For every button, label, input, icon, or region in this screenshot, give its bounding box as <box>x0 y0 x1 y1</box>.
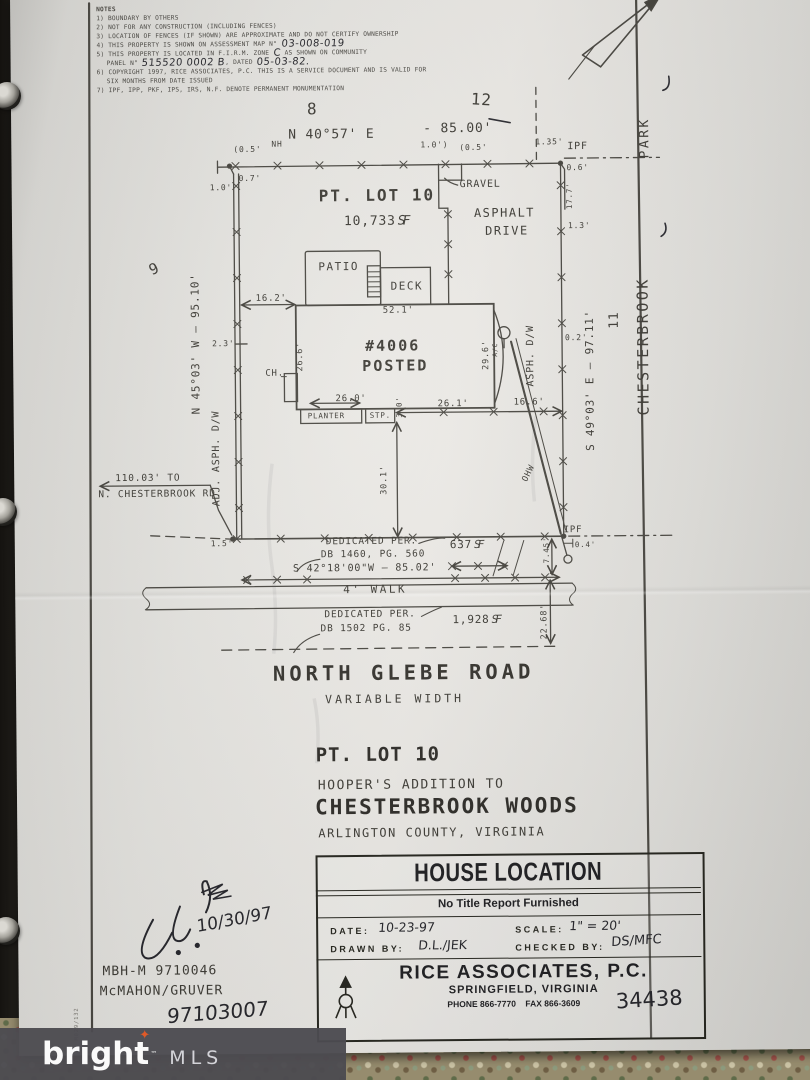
dim: 1.3' <box>568 222 591 230</box>
file-ref-2: McMAHON/GRUVER <box>100 984 224 998</box>
scale-label: SCALE: <box>515 924 564 934</box>
bearing-north: N 40°57' E <box>288 128 374 142</box>
bearing-west: N 45°03' W – 95.10' <box>189 273 201 414</box>
paper-crease <box>15 585 810 601</box>
dedication-2-area: 1,928SF <box>452 614 498 625</box>
dim: 1.35' <box>535 138 563 146</box>
dedication-1-area: 637SF <box>450 539 482 550</box>
subdivision-addition: HOOPER'S ADDITION TO <box>318 778 505 793</box>
adjacent-lot-9: 9 <box>147 260 162 278</box>
brand-name: bright✦ <box>42 1036 149 1072</box>
checked-by-label: CHECKED BY: <box>515 942 604 953</box>
dedication-1-label: DEDICATED PER. <box>326 536 417 546</box>
overhead-wire-label: OHW <box>521 464 537 484</box>
date-value: 10-23-97 <box>378 921 436 934</box>
dim: 29.6' <box>482 340 491 370</box>
ipf-marker-bottom: IPF <box>564 526 583 535</box>
survey-photo: NOTES 1) BOUNDARY BY OTHERS 2) NOT FOR A… <box>0 0 810 1080</box>
subdivision-lot: PT. LOT 10 <box>316 745 441 765</box>
adjacent-lot-8: 8 <box>307 101 318 117</box>
surveyor-logo-icon <box>327 975 365 1023</box>
star-icon: ✦ <box>139 1028 150 1043</box>
dim: 3.0' <box>396 396 404 417</box>
ipf-marker-top: IPF <box>567 142 588 152</box>
deck-label: DECK <box>390 280 423 291</box>
dim: 0.6' <box>566 164 589 172</box>
dim: (0.5' <box>233 146 261 154</box>
asphalt-drive-label-1: ASPHALT <box>474 206 535 219</box>
dim: 1.0' <box>210 184 233 192</box>
file-ref-3: 97103007 <box>167 998 269 1026</box>
adjacent-lot-11: 11 <box>608 311 621 328</box>
checked-by-value: DS/MFC <box>611 933 662 949</box>
notes-block: NOTES 1) BOUNDARY BY OTHERS 2) NOT FOR A… <box>96 2 427 95</box>
dim: 2.3' <box>212 340 235 348</box>
asphalt-dw-label: ASPH. D/W <box>526 325 537 386</box>
drawn-by-label: DRAWN BY: <box>330 944 404 955</box>
asphalt-drive-label-2: DRIVE <box>485 224 529 236</box>
firm-name: RICE ASSOCIATES, P.C. <box>358 960 688 985</box>
to-road-distance-2: N. CHESTERBROOK RD. <box>98 489 222 500</box>
dim: (0.5' <box>459 144 487 152</box>
file-ref-1: MBH-M 9710046 <box>102 964 217 978</box>
sheet-border-left <box>83 3 98 1031</box>
stoop-label: STP. <box>370 412 391 420</box>
road-width: VARIABLE WIDTH <box>325 693 464 706</box>
street-chesterbrook: CHESTERBROOK <box>635 277 651 416</box>
adjacent-lot-12: 12 <box>470 91 492 108</box>
walk-label: 4' WALK <box>343 584 407 596</box>
road-name: NORTH GLEBE ROAD <box>273 661 535 684</box>
binder-grommet <box>0 917 20 945</box>
dim: 0.7' <box>239 175 262 183</box>
note-line: 7) IPF, IPP, PKF, IPS, IRS, N.F. DENOTE … <box>97 83 427 95</box>
chimney-label: CH. <box>265 370 284 379</box>
nh-marker: NH <box>271 141 282 149</box>
dim: 0.2' <box>565 334 588 342</box>
brand-suffix: MLS <box>169 1047 223 1069</box>
job-number: 34438 <box>615 987 683 1012</box>
scale-value: 1" = 20' <box>569 920 621 933</box>
dim: 26.0' <box>335 395 366 404</box>
dim: 26.6' <box>296 342 305 372</box>
bright-mls-watermark: bright✦ ™ MLS <box>0 1028 346 1080</box>
date-label: DATE: <box>330 926 369 936</box>
bearing-south: S 42°18'00"W – 85.02' <box>293 563 436 574</box>
dim: 1.0') <box>420 141 448 149</box>
dim: 17.7' <box>566 183 574 210</box>
ac-unit-label: A/C <box>492 343 499 357</box>
planter-label: PLANTER <box>308 412 345 420</box>
trademark-symbol: ™ <box>150 1050 157 1058</box>
dedication-2-ref: DB 1502 PG. 85 <box>320 624 411 634</box>
dim: 1.5' <box>211 540 234 548</box>
title-block-title: HOUSE LOCATION <box>339 856 678 889</box>
dim: 26.1' <box>438 400 469 409</box>
signature-date: 10/30/97 <box>196 905 272 936</box>
drawn-by-value: D.L./JEK <box>418 939 468 952</box>
dedication-2-label: DEDICATED PER. <box>324 609 415 619</box>
dedication-1-ref: DB 1460, PG. 560 <box>321 549 425 559</box>
dim: 30.1' <box>380 465 389 495</box>
dim: 16.2' <box>256 295 287 304</box>
dim: 16.6' <box>514 398 545 407</box>
dim: 52.1' <box>383 306 414 315</box>
dim: 22.68' <box>540 604 549 640</box>
lot-area: 10,733SF <box>344 215 408 229</box>
house-number: #4006 <box>365 338 420 353</box>
bearing-east: S 49°03' E – 97.11' <box>584 310 596 451</box>
posted-label: POSTED <box>362 358 428 374</box>
dim: 7.45' <box>543 537 551 564</box>
street-park: PARK <box>638 117 651 158</box>
gravel-label: GRAVEL <box>460 180 501 190</box>
survey-plat-sheet: NOTES 1) BOUNDARY BY OTHERS 2) NOT FOR A… <box>10 0 810 1056</box>
distance-north: - 85.00' <box>423 122 492 136</box>
dim: 0.4' <box>575 541 596 549</box>
subdivision-name: CHESTERBROOK WOODS <box>315 795 579 818</box>
patio-label: PATIO <box>318 261 359 272</box>
lot-title: PT. LOT 10 <box>319 187 435 204</box>
north-arrow-icon <box>568 0 662 79</box>
subdivision-county: ARLINGTON COUNTY, VIRGINIA <box>318 825 545 839</box>
to-road-distance-1: 110.03' TO <box>115 474 180 484</box>
